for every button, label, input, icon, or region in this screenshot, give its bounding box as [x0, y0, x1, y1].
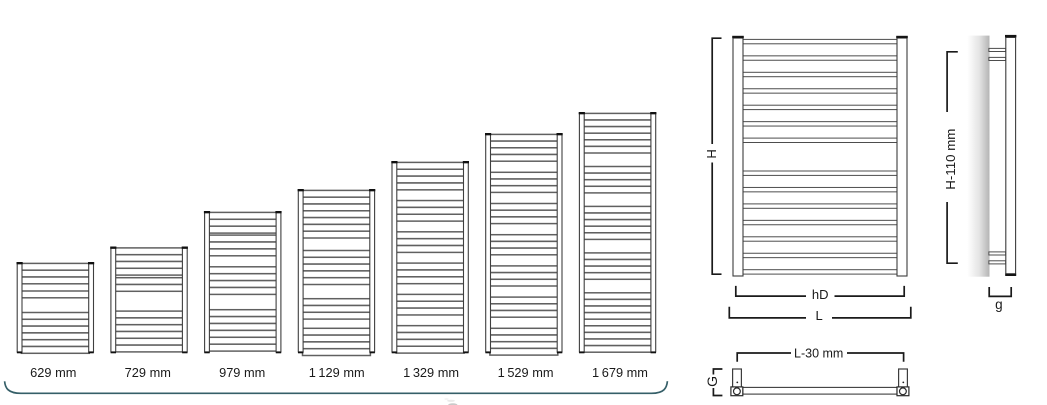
svg-text:hD: hD: [812, 287, 829, 302]
svg-text:H-110 mm: H-110 mm: [943, 129, 958, 190]
svg-text:L-30 mm: L-30 mm: [794, 347, 843, 361]
svg-text:L: L: [815, 308, 822, 323]
svg-text:1 129 mm: 1 129 mm: [309, 365, 365, 380]
svg-text:729 mm: 729 mm: [125, 365, 171, 380]
svg-text:G: G: [704, 376, 720, 387]
svg-text:629 mm: 629 mm: [30, 365, 76, 380]
svg-text:1 329 mm: 1 329 mm: [403, 365, 459, 380]
svg-text:979 mm: 979 mm: [219, 365, 265, 380]
svg-text:H: H: [704, 149, 719, 158]
svg-text:1 679 mm: 1 679 mm: [592, 365, 648, 380]
svg-text:1 529 mm: 1 529 mm: [498, 365, 554, 380]
svg-text:g: g: [995, 297, 1003, 312]
